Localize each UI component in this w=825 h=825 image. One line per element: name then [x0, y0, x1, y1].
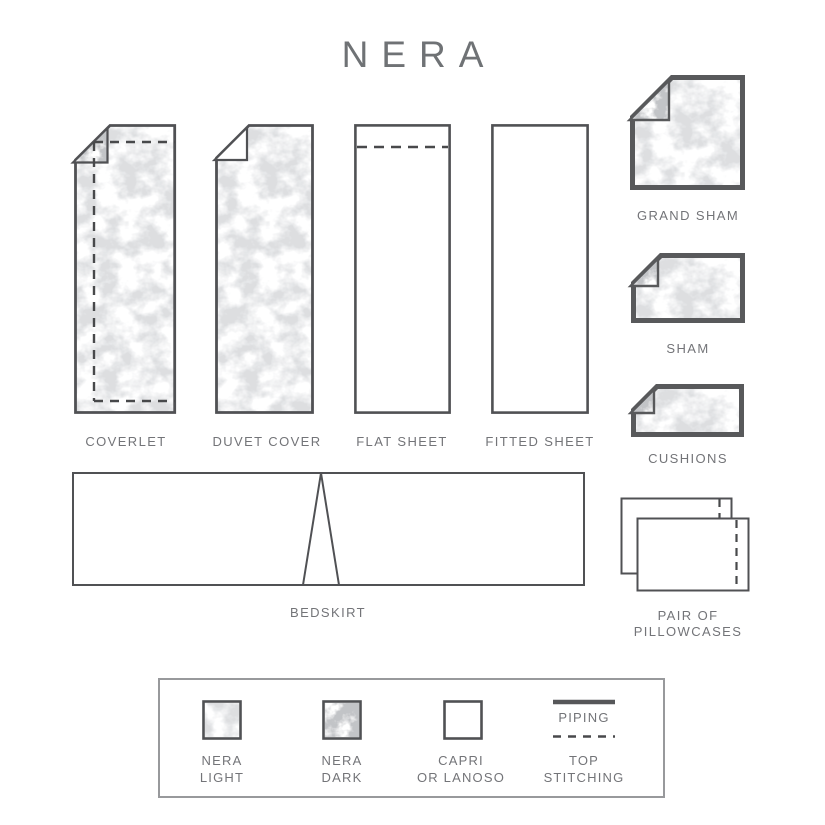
duvet-cover-label: DUVET COVER — [189, 434, 345, 450]
legend-label-nera-light: NERA LIGHT — [162, 752, 282, 786]
sham-shape — [631, 253, 745, 323]
legend-piping-line — [553, 698, 615, 706]
legend-swatch-capri-or-lanoso — [443, 700, 483, 740]
fitted-sheet-shape — [491, 124, 589, 414]
grand-sham-label: GRAND SHAM — [608, 208, 768, 224]
flat-sheet-label: FLAT SHEET — [326, 434, 478, 450]
bedskirt-shape — [72, 472, 585, 587]
grand-sham-fold-flap — [630, 81, 670, 121]
cushions-fold-flap — [631, 390, 655, 414]
legend-top-stitching-line — [553, 734, 615, 739]
flat-sheet-shape — [354, 124, 451, 414]
legend-label-nera-dark: NERA DARK — [282, 752, 402, 786]
legend-label-capri: CAPRI OR LANOSO — [401, 752, 521, 786]
legend-label-piping: PIPING — [523, 709, 645, 726]
legend-label-top-stitching: TOP STITCHING — [524, 752, 644, 786]
nera-collection-diagram: NERA COVERLET DUVET COVER FLAT SHEET — [0, 0, 825, 825]
coverlet-label: COVERLET — [50, 434, 202, 450]
sham-fold-flap — [631, 259, 659, 287]
coverlet-fold-flap — [73, 128, 108, 163]
cushions-label: CUSHIONS — [608, 451, 768, 467]
legend-swatch-nera-dark — [322, 700, 362, 740]
pillowcase-front — [638, 519, 749, 591]
page-title: NERA — [0, 34, 825, 76]
cushions-shape — [631, 384, 744, 437]
grand-sham-shape — [630, 75, 745, 190]
sham-label: SHAM — [608, 341, 768, 357]
coverlet-shape — [74, 124, 176, 414]
pillowcases-label: PAIR OF PILLOWCASES — [598, 608, 778, 640]
pillowcases-shape — [618, 495, 752, 595]
duvet-fold-flap — [215, 128, 248, 161]
legend-box: NERA LIGHT NERA DARK CAPRI OR LANOSO PIP… — [158, 678, 665, 798]
bedskirt-label: BEDSKIRT — [252, 605, 404, 621]
legend-swatch-nera-light — [202, 700, 242, 740]
duvet-cover-shape — [215, 124, 314, 414]
fitted-sheet-label: FITTED SHEET — [464, 434, 616, 450]
